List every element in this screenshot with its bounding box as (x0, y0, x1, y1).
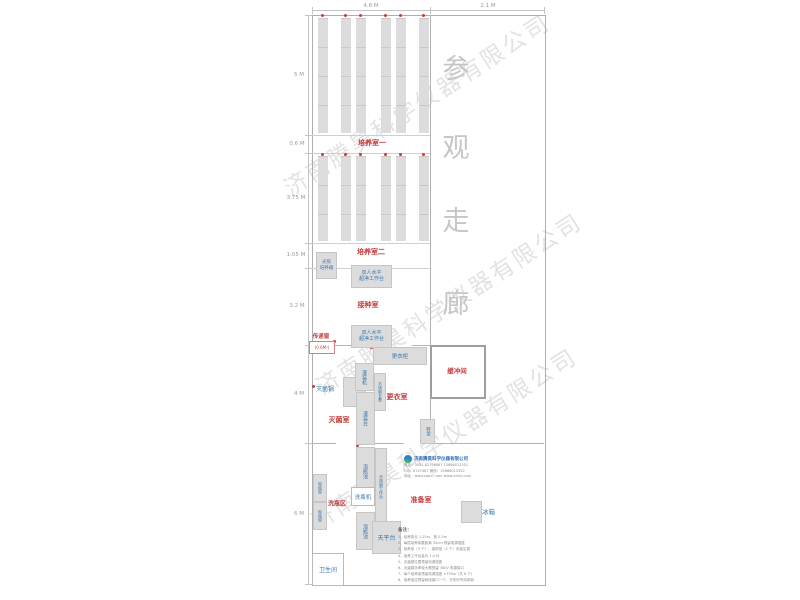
dimension-label-4m: 4 M (294, 391, 304, 397)
notes-block: 备注： 1、培养架长 1.25m，宽 0.5m 2、每层培养架要距离 30cm … (398, 527, 498, 584)
company-logo-icon (404, 455, 412, 463)
filling-table-label: 灌装台 (362, 411, 369, 426)
shoe-rack: 鞋架 (420, 419, 435, 444)
dimension-label-6m: 6 M (294, 511, 304, 517)
dimension-label-width-right: 2.1 M (480, 3, 495, 9)
dimension-label-width-left: 4.8 M (363, 3, 378, 9)
clean-bench-label: 双人水平 超净工作台 (359, 331, 384, 343)
filling-machine-label: 灌装机 (361, 370, 368, 385)
dimension-tick (305, 15, 312, 16)
room-label-culture1: 培养室一 (358, 138, 386, 148)
culture-shelf-rack (318, 156, 328, 241)
dimension-label-105m: 1.05 M (287, 252, 306, 258)
culture-shelf-rack (419, 18, 429, 133)
power-outlet-marker (359, 14, 362, 17)
floorplan-canvas: 济南腾昊科学仪器有限公司 济南腾昊科学仪器有限公司 济南腾昊科学仪器有限公司 4… (0, 0, 800, 600)
corridor-title-char: 廊 (442, 282, 470, 321)
room-label-inoculation: 接种室 (358, 300, 379, 310)
power-outlet-marker (384, 153, 387, 156)
dimension-tick (544, 7, 545, 14)
interior-wall (312, 443, 336, 444)
drying-rack-2: 晾瓶架 (313, 502, 327, 530)
dimension-tick (305, 135, 312, 136)
notes-title: 备注： (398, 527, 498, 534)
dimension-label-375m: 3.75 M (287, 195, 306, 201)
stainless-bench: 不锈钢长凳 (374, 373, 386, 411)
clean-bench-1: 双人水平 超净工作台 (351, 265, 392, 288)
power-outlet-marker (384, 14, 387, 17)
power-outlet-marker (359, 153, 362, 156)
drying-rack-label: 晾瓶架 (317, 510, 323, 522)
clean-bench-label: 双人水平 超净工作台 (359, 271, 384, 283)
filling-table: 灌装台 (356, 392, 375, 445)
dimension-label-32m: 3.2 M (289, 303, 304, 309)
company-block: 济南腾昊科学仪器有限公司 电话：0531-82796867 1586601335… (404, 455, 494, 480)
fridge-box (461, 501, 482, 523)
soak-pool-label: 泡瓶池 (362, 464, 369, 479)
dimension-tick (430, 7, 431, 14)
partition-line (312, 135, 430, 136)
culture-shelf-rack (356, 18, 366, 133)
culture-shelf-rack (396, 156, 406, 241)
soak-pool-label: 泡瓶池 (362, 524, 369, 539)
drying-rack-1: 晾瓶架 (313, 474, 327, 502)
company-web: 网址：www.sqwl7.com www.cnhkj.com (404, 474, 494, 480)
wardrobe: 更衣柜 (373, 347, 427, 365)
power-outlet-marker (321, 14, 324, 17)
dimension-tick (305, 584, 312, 585)
stainless-worktable: 不锈钢工作台 (375, 448, 387, 525)
culture-shelf-rack (341, 18, 351, 133)
room-label-buffer: 缓冲间 (447, 365, 467, 375)
dimension-label-06m: 0.6 M (289, 141, 304, 147)
room-label-washing-area: 洗瓶区 (328, 499, 346, 508)
dimension-tick (305, 443, 312, 444)
partition-line (312, 243, 430, 244)
culture-shelf-rack (318, 18, 328, 133)
partition-line (312, 153, 430, 154)
culture-shelf-rack (356, 156, 366, 241)
note-item: 8、培养室应预留网线接口一个，天热时专用风扇. (398, 577, 498, 583)
balance-table-label: 天平台 (377, 533, 395, 542)
clean-bench-2: 双人水平 超净工作台 (351, 325, 392, 348)
dimension-tick (305, 268, 312, 269)
pass-window-label: 传递窗 (313, 332, 330, 340)
culture-shelf-rack (381, 156, 391, 241)
interior-wall (424, 443, 544, 444)
toilet-room: 卫生间 (312, 553, 344, 586)
culture-shelf-rack (381, 18, 391, 133)
wardrobe-label: 更衣柜 (392, 352, 409, 360)
pass-window: (0.6M²) (309, 341, 335, 354)
sterilizer-label: 灭菌锅 (316, 384, 334, 393)
power-outlet-marker (399, 153, 402, 156)
dimension-line-top (312, 10, 545, 11)
balance-table: 天平台 (372, 521, 401, 554)
room-label-prep: 准备室 (411, 495, 432, 505)
pass-window-size: (0.6M²) (315, 345, 330, 350)
stainless-bench-label: 不锈钢长凳 (377, 382, 383, 402)
light-incubator: 光照 培养箱 (316, 252, 337, 279)
corridor-title-char: 走 (442, 199, 470, 238)
culture-shelf-rack (341, 156, 351, 241)
power-outlet-marker (344, 14, 347, 17)
room-label-sterilization: 灭菌室 (329, 415, 350, 425)
interior-wall (412, 345, 430, 346)
power-outlet-marker (399, 14, 402, 17)
culture-shelf-rack (419, 156, 429, 241)
power-outlet-marker (312, 385, 315, 388)
dimension-line-left (308, 15, 309, 585)
shoe-rack-label: 鞋架 (425, 427, 431, 436)
fridge-label: 冰箱 (482, 506, 495, 516)
dimension-tick (312, 7, 313, 14)
power-outlet-marker (344, 153, 347, 156)
power-outlet-marker (321, 153, 324, 156)
corridor-title-char: 观 (442, 126, 470, 165)
company-name: 济南腾昊科学仪器有限公司 (414, 456, 468, 462)
room-label-changing: 更衣室 (387, 392, 408, 402)
dimension-tick (305, 243, 312, 244)
dimension-tick (305, 153, 312, 154)
light-incubator-label: 光照 培养箱 (320, 260, 334, 270)
stainless-worktable-label: 不锈钢工作台 (378, 475, 384, 499)
culture-shelf-rack (396, 18, 406, 133)
corridor-title-char: 参 (442, 47, 470, 86)
power-outlet-marker (422, 153, 425, 156)
dimension-label-5m: 5 M (294, 72, 304, 78)
power-outlet-marker (422, 14, 425, 17)
room-label-culture2: 培养室二 (357, 247, 385, 257)
toilet-label: 卫生间 (319, 565, 337, 574)
bottle-washer-label: 洗瓶机 (355, 493, 372, 501)
filling-machine: 灌装机 (355, 363, 374, 391)
bottle-washer: 洗瓶机 (351, 487, 375, 506)
drying-rack-label: 晾瓶架 (317, 482, 323, 494)
